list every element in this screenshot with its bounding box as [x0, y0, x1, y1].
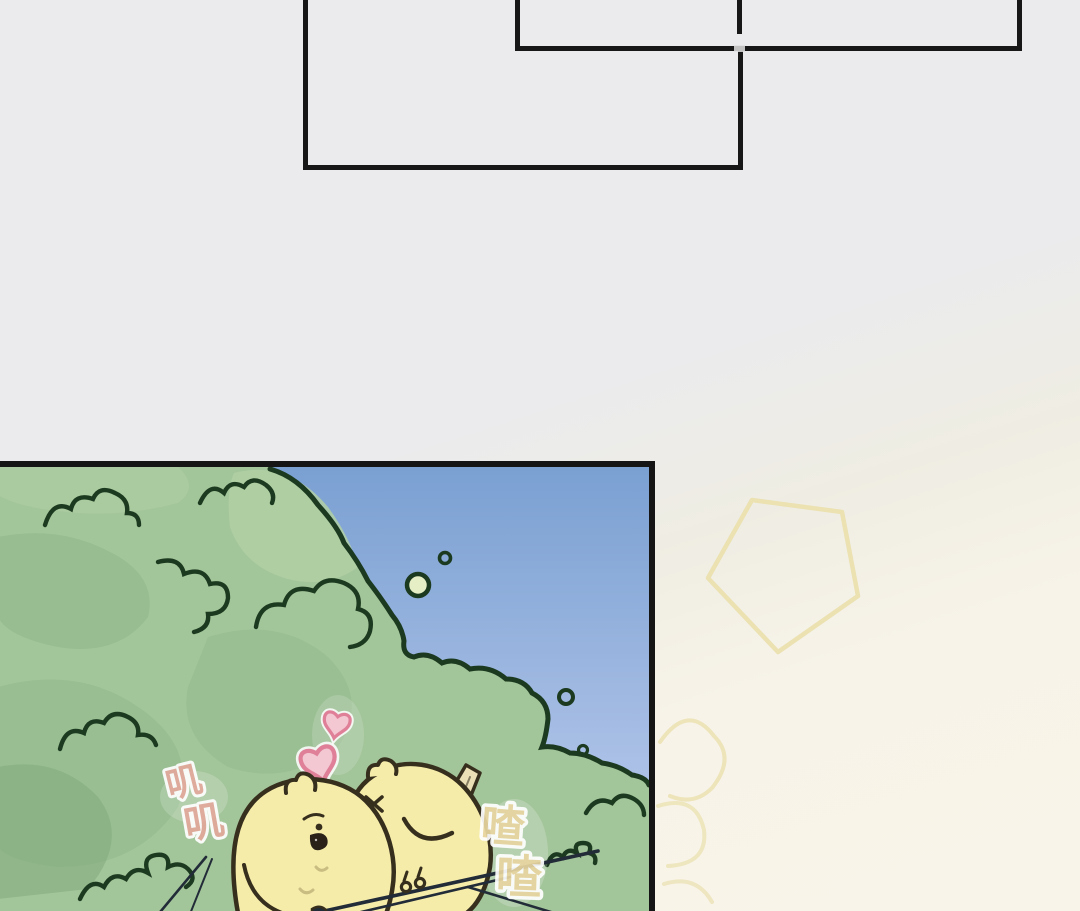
comic-scene: 叽 叽 喳 喳 — [0, 467, 649, 911]
bubble-icon — [407, 574, 429, 596]
pentagon-doodle — [708, 500, 858, 652]
sfx-chirp-right: 喳 — [479, 800, 527, 854]
petal-doodle — [664, 881, 712, 902]
panel-divider-line — [737, 0, 742, 34]
sfx-chirp-right: 喳 — [495, 849, 544, 905]
chick-left-eye — [316, 824, 323, 831]
panel-border-notch — [734, 45, 745, 52]
petal-doodle — [658, 803, 704, 866]
page-background: 叽 叽 喳 喳 — [0, 0, 1080, 911]
chick-left-foot — [312, 907, 326, 911]
beak-glint — [315, 839, 317, 841]
comic-panel: 叽 叽 喳 喳 — [0, 461, 655, 911]
sfx-chirp-left: 叽 — [180, 797, 227, 849]
petal-doodle — [660, 720, 725, 799]
empty-panel-top-right — [515, 0, 1022, 51]
